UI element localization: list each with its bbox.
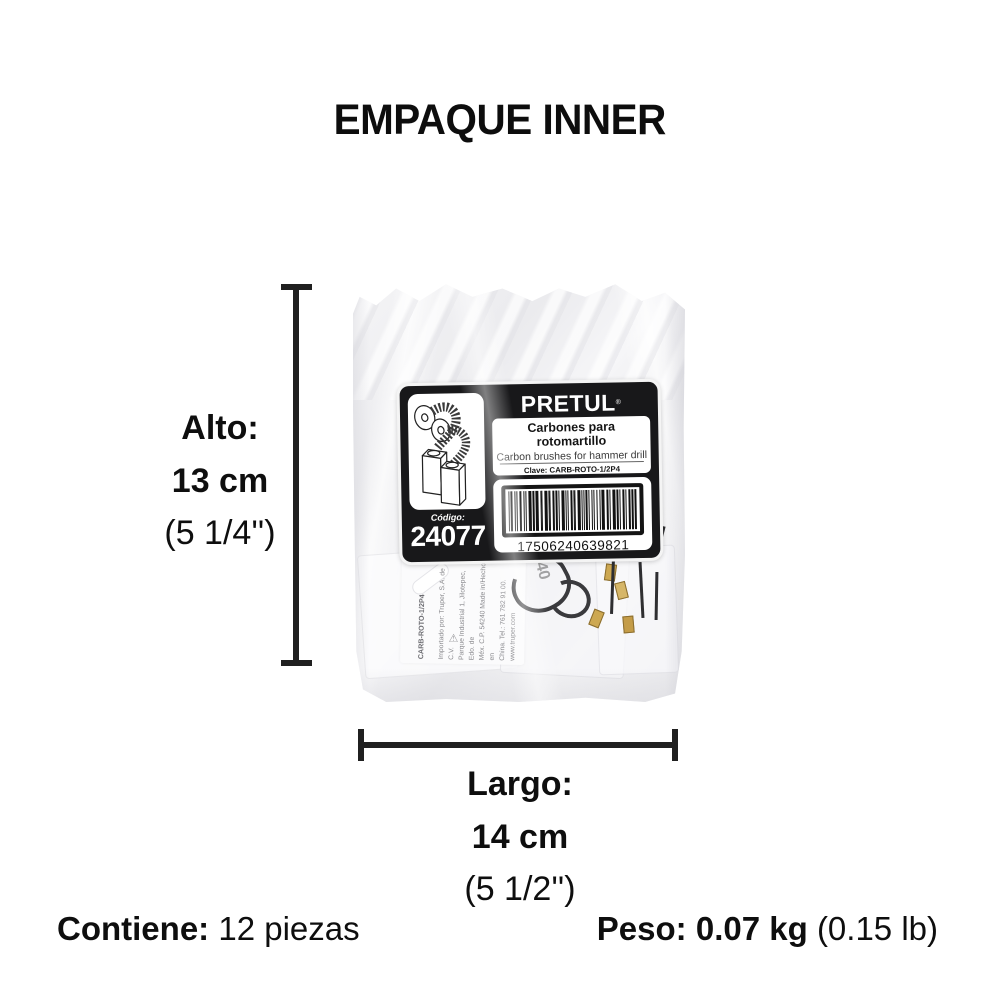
barcode-frame [501, 483, 644, 537]
width-dimension-line [358, 742, 678, 748]
weight-note: Peso: 0.07 kg (0.15 lb) [597, 910, 938, 948]
peso-label: Peso: [597, 910, 687, 947]
clave-label: Clave: [524, 466, 548, 475]
page-title-text: EMPAQUE INNER [334, 96, 666, 145]
barcode-bars [508, 489, 637, 531]
height-inches: (5 1/4'') [95, 507, 345, 560]
product-illustration-panel [408, 393, 486, 510]
importer-line: Méx. C.P. 54240 Made in/Hecho en [477, 560, 499, 660]
width-dimension-cap-left [358, 729, 364, 761]
registered-mark: ® [616, 399, 621, 406]
height-annotation: Alto: 13 cm (5 1/4'') [95, 402, 345, 560]
codigo-block: Código: 24077 [402, 512, 495, 552]
contiene-label: Contiene: [57, 910, 209, 947]
page-title: EMPAQUE INNER [0, 96, 1000, 145]
peso-alt: (0.15 lb) [817, 910, 938, 947]
clave-value: CARB-ROTO-1/2P4 [549, 464, 620, 474]
product-spec-sheet: EMPAQUE INNER Alto: 13 cm (5 1/4'') CARB… [0, 0, 1000, 1000]
width-inches: (5 1/2'') [370, 863, 670, 916]
product-info-box: Carbones para rotomartillo Carbon brushe… [492, 416, 651, 476]
contents-note: Contiene: 12 piezas [57, 910, 360, 948]
importer-line: Parque Industrial 1, Jilotepec, Edo. de [457, 560, 479, 660]
height-dimension-cap-bottom [281, 660, 312, 666]
barcode-number: 17506240639821 [494, 537, 652, 555]
width-label: Largo: [370, 758, 670, 811]
width-annotation: Largo: 14 cm (5 1/2'') [370, 758, 670, 916]
barcode-box: 17506240639821 [493, 477, 652, 553]
peso-value: 0.07 kg [696, 910, 808, 947]
brand-row: PRETUL® [492, 389, 650, 419]
warning-triangle-icon: ⚠ [448, 632, 458, 645]
plastic-bag: CARB-ROTO-1/2P4 Importado por: Truper, S… [353, 280, 685, 702]
product-name-es: Carbones para rotomartillo [492, 419, 650, 451]
width-dimension-cap-right [672, 729, 678, 761]
brass-terminal [622, 616, 634, 634]
importer-info-card: CARB-ROTO-1/2P4 Importado por: Truper, S… [400, 555, 526, 665]
codigo-value: 24077 [402, 522, 494, 552]
carbon-brushes-illustration [408, 393, 486, 510]
product-label: Código: 24077 PRETUL® Carbones para roto… [396, 379, 663, 566]
card-sku: CARB-ROTO-1/2P4 [416, 559, 429, 659]
importer-text-rotated: CARB-ROTO-1/2P4 Importado por: Truper, S… [416, 559, 520, 661]
brand-logo: PRETUL [520, 389, 615, 417]
contiene-value: 12 piezas [218, 910, 359, 947]
height-label: Alto: [95, 402, 345, 455]
height-dimension-cap-top [281, 284, 312, 290]
width-value: 14 cm [370, 811, 670, 864]
height-value: 13 cm [95, 455, 345, 508]
clave-row: Clave: CARB-ROTO-1/2P4 [500, 461, 644, 476]
